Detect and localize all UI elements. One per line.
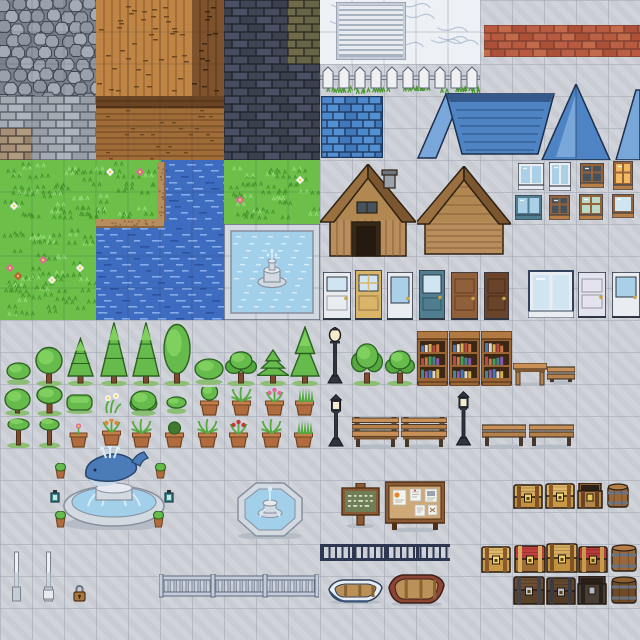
bench-back-1 [352, 417, 399, 448]
window-brown-small [549, 195, 570, 220]
wood-cabin-plain [417, 166, 511, 256]
bookshelf-1 [417, 331, 448, 386]
brick-gray-block [0, 96, 96, 160]
grass-block-left [0, 224, 96, 320]
door-tan-glass [355, 270, 382, 320]
door-white [323, 272, 351, 320]
street-lamp-ornate [326, 394, 346, 447]
pine-tall-2 [130, 321, 162, 386]
potted-pink-flowers [261, 387, 288, 416]
notice-board [385, 481, 445, 532]
pine-tall [98, 321, 130, 386]
dirt-edge-horizontal [96, 219, 164, 228]
potted-leafy-3 [195, 419, 220, 448]
bookshelf-2 [449, 331, 480, 386]
tree-leafy-2 [385, 349, 415, 386]
rowboat-red [387, 572, 446, 606]
marble-block [320, 0, 480, 64]
pole-2 [43, 551, 54, 602]
wooden-sign [341, 483, 380, 528]
barrel-dark [610, 575, 638, 605]
wood-planks-horizontal [96, 96, 224, 160]
bush-fluffy [129, 389, 158, 416]
picket-fence [320, 64, 480, 94]
chest-red-2 [578, 546, 608, 573]
roof-blue-zigzag [416, 84, 640, 160]
water-river [161, 160, 224, 224]
potted-topiary [197, 387, 222, 416]
chest-gold-2 [481, 546, 511, 573]
chest-dark-2 [546, 577, 576, 605]
potted-leafy [227, 385, 256, 416]
potted-snake-plant [291, 385, 318, 416]
brick-navy-block [224, 0, 288, 160]
bush-tiny [165, 395, 188, 414]
railing-navy [320, 544, 450, 565]
bookshelf-3 [481, 331, 512, 386]
hedge-flat [65, 389, 94, 414]
street-lamp-round [325, 327, 345, 384]
window-white-tall [549, 162, 571, 191]
door-lavender-panel [578, 272, 606, 318]
wood-table [513, 363, 547, 386]
bush-round [5, 361, 32, 385]
chest-red-lid [514, 545, 546, 573]
window-brown-dark [580, 163, 604, 188]
bench-low-2 [529, 423, 574, 448]
barrel-brown [610, 543, 638, 573]
whale-fountain [62, 446, 166, 530]
dirt-edge-vertical [157, 162, 166, 222]
pine-double [289, 326, 321, 386]
tileset-canvas [0, 0, 640, 640]
fountain-lantern-2 [162, 489, 176, 504]
tree-small [35, 385, 64, 416]
chest-black-open [577, 576, 607, 605]
tree-lollipop-2 [37, 417, 62, 448]
barrel-small [606, 482, 630, 509]
potted-tiny-flower [69, 423, 88, 448]
potted-leafy-5 [291, 419, 316, 448]
chest-gold-planks [513, 484, 543, 509]
window-brown-green [579, 194, 603, 220]
tree-leafy [225, 350, 257, 386]
tree-oval [162, 323, 192, 386]
potted-leafy-2 [129, 419, 154, 448]
door-teal-glass [419, 270, 445, 320]
grass-block-right [224, 160, 320, 224]
brick-blue-tile [321, 96, 383, 158]
chest-gold-3 [546, 543, 578, 573]
brick-navy-tile [288, 64, 320, 160]
tree-leafy-big [351, 341, 383, 386]
fountain-lantern-1 [48, 489, 62, 504]
rowboat-white [327, 577, 384, 604]
brick-olive-tile [288, 0, 320, 64]
wood-planks-dark [192, 0, 224, 96]
window-brown-lit [613, 161, 633, 190]
bush-trunk [3, 387, 32, 416]
bench-low-1 [482, 423, 526, 448]
fountain-pot-2 [153, 463, 168, 479]
railing-light [159, 574, 319, 599]
street-lamp-ornate-2 [454, 391, 473, 446]
window-white-blue [518, 163, 544, 190]
bench-small [547, 365, 575, 384]
brick-tan-tile [0, 128, 32, 160]
fountain-pot-4 [151, 511, 167, 528]
grass-block-top [0, 160, 161, 224]
potted-leafy-4 [259, 419, 284, 448]
stone-pool [224, 224, 320, 320]
potted-red-flower [227, 419, 250, 448]
door-dark-brown [484, 272, 509, 320]
door-white-right [612, 272, 640, 318]
window-teal [515, 195, 542, 220]
water-lake [96, 224, 224, 320]
bench-back-2 [401, 417, 447, 448]
cobblestone-block [0, 0, 96, 96]
flower-clump [101, 392, 125, 415]
bush-wide [193, 357, 225, 385]
wood-planks-light [96, 0, 192, 96]
tree-lollipop [5, 417, 32, 448]
pine-small [65, 337, 96, 386]
fountain-pot-1 [53, 463, 68, 479]
pine-layered [257, 349, 289, 386]
wood-cabin-door [320, 164, 416, 258]
potted-dark-plant [163, 421, 186, 448]
window-blinds [336, 2, 406, 60]
chest-open-brown [577, 483, 603, 509]
door-white-glass [387, 272, 413, 320]
chest-gold-straps [545, 483, 575, 509]
window-large-slider [528, 270, 574, 318]
window-brown-wide [612, 194, 634, 218]
fountain-pot-3 [53, 511, 68, 528]
octagon-fountain [235, 479, 305, 539]
potted-orange-flower [101, 419, 122, 446]
brick-red-band [484, 25, 640, 57]
tree-round [34, 346, 64, 386]
door-brown [451, 272, 478, 320]
padlock-item [72, 583, 87, 603]
chest-dark-1 [513, 576, 545, 605]
pole-1 [11, 551, 22, 602]
